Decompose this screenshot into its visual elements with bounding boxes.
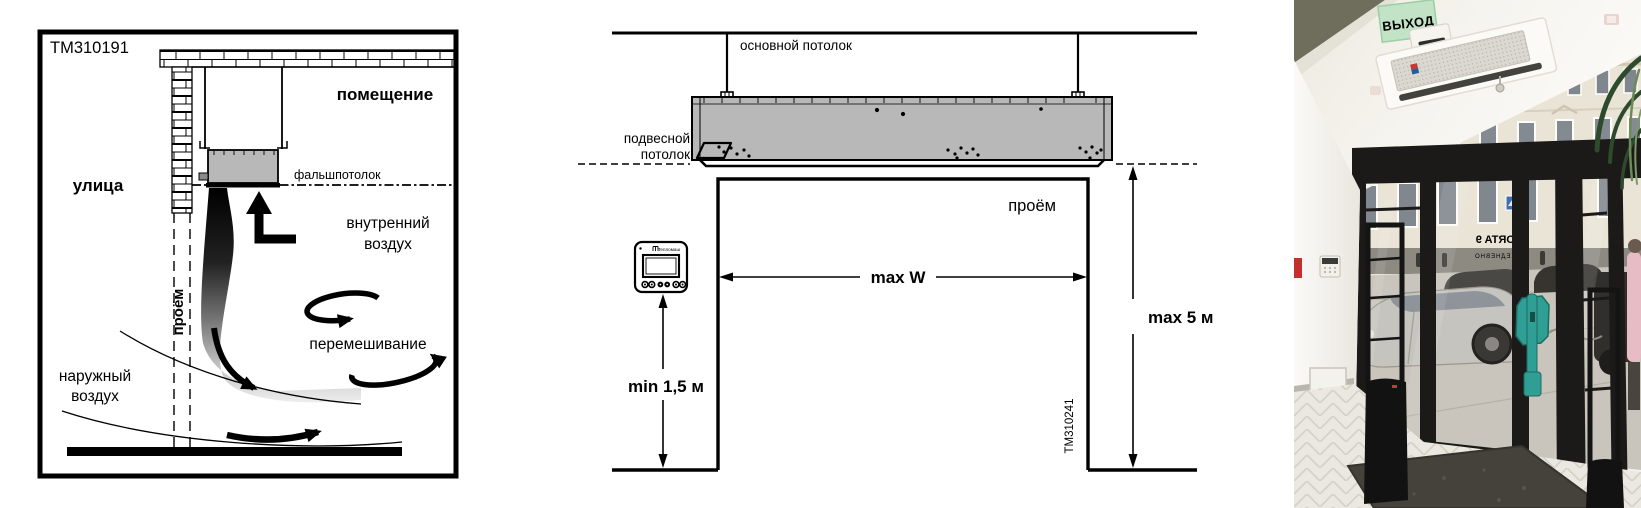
internal-air-label-1: внутренний <box>346 215 429 232</box>
wall-controller: Тепломаш <box>635 242 687 292</box>
main-ceiling-label: основной потолок <box>740 38 852 53</box>
brick-ceiling <box>160 50 454 67</box>
mixing-label: перемешивание <box>309 336 426 353</box>
figure-id-label: TM310191 <box>50 39 129 57</box>
svg-text:max W: max W <box>871 268 927 287</box>
outside-air-label-1: наружный <box>59 368 131 385</box>
suspended-ceiling-label-1: подвесной <box>624 131 690 146</box>
floor <box>67 447 402 456</box>
air-curtain-unit <box>692 97 1112 166</box>
street-label: улица <box>73 176 124 195</box>
airflow-diagram: TM310191 помещение улица фальшпотолок вн… <box>0 0 520 508</box>
svg-text:min 1,5 м: min 1,5 м <box>628 377 704 396</box>
figure-id-label: TM310241 <box>1064 399 1076 454</box>
opening-label: проём <box>170 289 187 336</box>
ceiling-spotlight <box>1370 86 1381 95</box>
svg-text:max 5 м: max 5 м <box>1148 308 1214 327</box>
installation-diagram: основной потолок подвесной потолок <box>520 0 1260 508</box>
fire-alarm <box>1294 258 1302 278</box>
dim-min-controller-height: min 1,5 м <box>628 294 704 468</box>
suspended-ceiling-label-2: потолок <box>641 147 690 162</box>
opening-label: проём <box>1008 197 1056 215</box>
brick-wall <box>172 67 192 213</box>
wall-keypad <box>1320 256 1340 277</box>
dim-max-height: max 5 м <box>1129 166 1214 468</box>
dim-max-width: max W <box>719 268 1087 287</box>
figure-canvas: TM310191 помещение улица фальшпотолок вн… <box>0 0 1641 508</box>
internal-air-label-2: воздух <box>364 236 412 253</box>
doorway-opening <box>612 179 1197 470</box>
passerby <box>1627 239 1641 410</box>
outside-air-label-2: воздух <box>71 388 119 405</box>
brand-label: Тепломаш <box>658 247 681 252</box>
room-label: помещение <box>337 85 433 104</box>
installation-photo: PORTA 9 ЕЖЕДНЕВНО ВЫХОД <box>1294 0 1641 508</box>
false-ceiling-label: фальшпотолок <box>294 168 381 182</box>
